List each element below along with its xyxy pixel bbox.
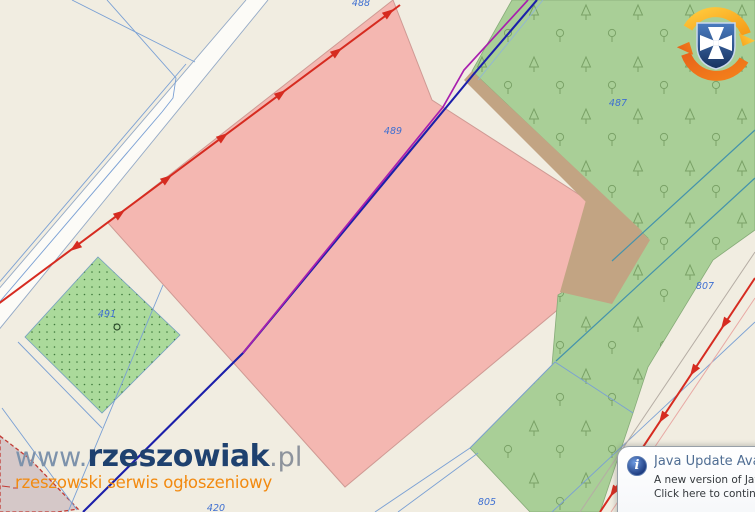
- parcel-label-489: 489: [384, 126, 402, 137]
- info-icon: i: [627, 456, 647, 476]
- map-screen: 488 489 487 491 805 807 420 www.rzeszowi…: [0, 0, 755, 512]
- popup-title[interactable]: Java Update Ava: [654, 454, 755, 469]
- logo-shield-cross-icon: [697, 23, 735, 69]
- popup-text-line1: A new version of Java: [654, 473, 755, 487]
- parcel-label-805: 805: [478, 497, 496, 508]
- rzeszowiak-logo: [674, 0, 755, 88]
- java-update-popup[interactable]: i Java Update Ava A new version of Java …: [617, 446, 755, 512]
- watermark-tagline: rzeszowski serwis ogłoszeniowy: [15, 475, 302, 492]
- watermark-name: rzeszowiak: [87, 439, 269, 474]
- parcel-label-488: 488: [352, 0, 370, 9]
- parcel-label-487: 487: [609, 98, 627, 109]
- watermark-tld: .pl: [269, 442, 302, 473]
- watermark-domain: www.rzeszowiak.pl: [15, 442, 302, 472]
- popup-body: Java Update Ava A new version of Java Cl…: [654, 454, 755, 512]
- parcel-label-420: 420: [207, 503, 225, 512]
- popup-text-line2[interactable]: Click here to continue: [654, 487, 755, 501]
- parcel-label-491: 491: [98, 309, 116, 320]
- watermark-www: www.: [15, 442, 87, 473]
- parcel-label-807: 807: [696, 281, 714, 292]
- map-canvas[interactable]: 488 489 487 491 805 807 420: [0, 0, 755, 512]
- watermark: www.rzeszowiak.pl rzeszowski serwis ogło…: [15, 442, 302, 492]
